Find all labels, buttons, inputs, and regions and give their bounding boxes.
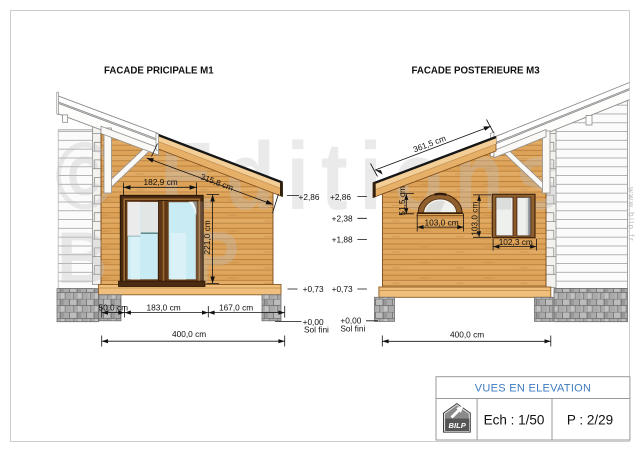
svg-text:+2,86: +2,86 [330,192,351,202]
svg-text:167,0 cm: 167,0 cm [219,302,253,312]
svg-text:182,9 cm: 182,9 cm [144,177,178,187]
svg-text:P : 2/29: P : 2/29 [567,413,613,428]
svg-text:103,0 cm: 103,0 cm [470,202,480,236]
svg-text:www.bilp.fr: www.bilp.fr [627,186,636,242]
svg-text:400,0 cm: 400,0 cm [172,329,206,339]
svg-text:+2,86: +2,86 [299,192,320,202]
svg-text:+2,38: +2,38 [332,213,353,223]
svg-text:+0,73: +0,73 [332,284,353,294]
svg-text:BILP: BILP [449,421,467,430]
svg-text:103,0 cm: 103,0 cm [425,217,459,227]
svg-text:102,3 cm: 102,3 cm [499,237,533,247]
svg-text:221,0 cm: 221,0 cm [202,220,212,254]
svg-text:FACADE POSTERIEURE M3: FACADE POSTERIEURE M3 [412,66,541,77]
svg-text:VUES EN ELEVATION: VUES EN ELEVATION [475,383,592,395]
svg-text:Sol fini: Sol fini [340,323,365,333]
svg-text:183,0 cm: 183,0 cm [147,302,181,312]
svg-text:400,0 cm: 400,0 cm [450,329,484,339]
svg-text:+1,88: +1,88 [332,235,353,245]
svg-text:50,0 cm: 50,0 cm [99,302,129,312]
svg-text:FACADE PRICIPALE M1: FACADE PRICIPALE M1 [104,66,214,77]
svg-text:51,5 cm: 51,5 cm [397,186,407,216]
svg-text:+0,73: +0,73 [303,284,324,294]
svg-text:Sol fini: Sol fini [304,325,329,335]
svg-text:Ech : 1/50: Ech : 1/50 [484,413,545,428]
